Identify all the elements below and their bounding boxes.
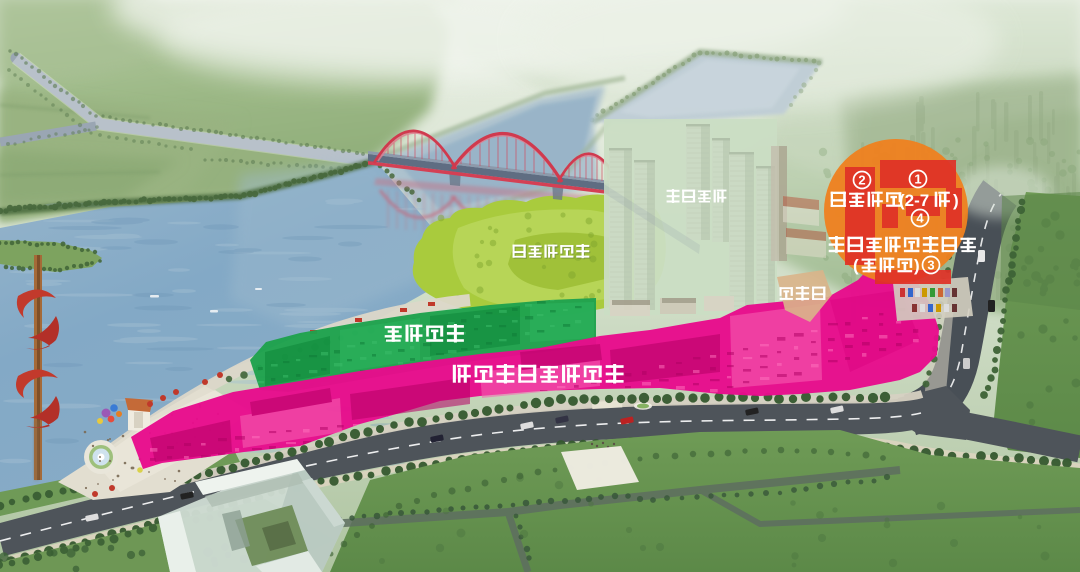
svg-text:1: 1	[914, 172, 921, 187]
svg-text:2: 2	[858, 173, 865, 188]
svg-text:4: 4	[916, 211, 924, 226]
svg-text:): )	[914, 256, 920, 275]
svg-text:3: 3	[927, 258, 934, 273]
svg-text:): )	[953, 191, 959, 210]
svg-text:(: (	[853, 256, 859, 275]
svg-text:(2-7: (2-7	[899, 191, 929, 210]
